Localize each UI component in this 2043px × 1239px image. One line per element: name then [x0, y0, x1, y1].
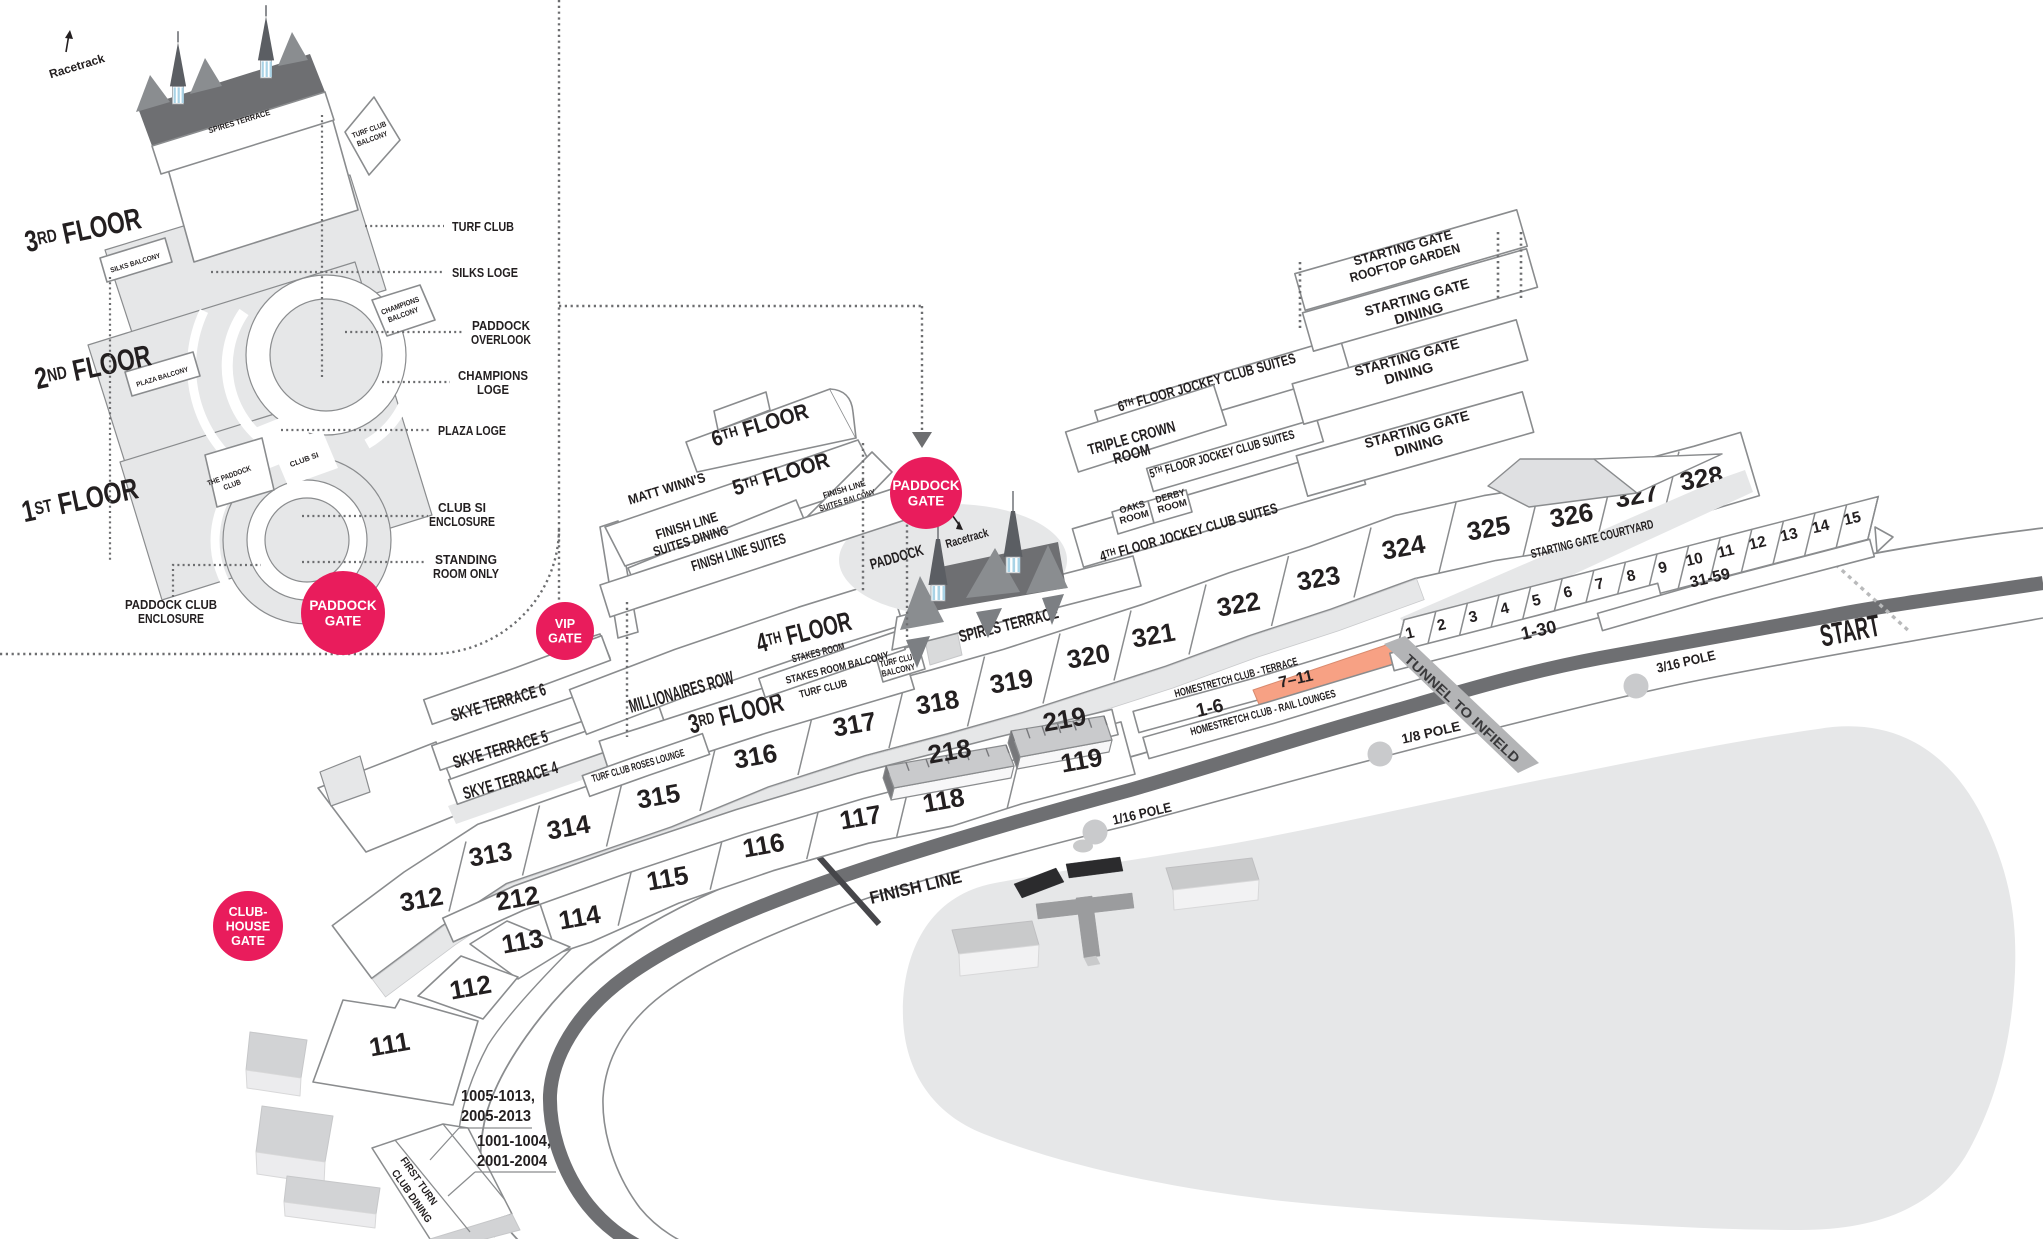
svg-text:GATE: GATE	[908, 494, 945, 509]
svg-text:STANDING: STANDING	[435, 553, 497, 567]
svg-text:1001-1004,: 1001-1004,	[477, 1133, 551, 1150]
svg-text:GATE: GATE	[548, 632, 582, 646]
svg-text:2005-2013: 2005-2013	[461, 1108, 531, 1125]
svg-text:VIP: VIP	[555, 617, 575, 631]
svg-text:PADDOCK CLUB: PADDOCK CLUB	[125, 598, 217, 612]
svg-text:ENCLOSURE: ENCLOSURE	[138, 612, 204, 626]
svg-text:GATE: GATE	[231, 934, 265, 948]
svg-text:PADDOCK: PADDOCK	[892, 478, 960, 493]
svg-text:CHAMPIONS: CHAMPIONS	[458, 369, 528, 383]
svg-text:PADDOCK: PADDOCK	[309, 598, 377, 613]
svg-text:HOUSE: HOUSE	[226, 919, 270, 933]
svg-text:PADDOCK: PADDOCK	[472, 319, 530, 333]
svg-text:GATE: GATE	[325, 614, 362, 629]
svg-text:ENCLOSURE: ENCLOSURE	[429, 515, 495, 529]
svg-text:CLUB SI: CLUB SI	[438, 501, 486, 515]
svg-text:PLAZA LOGE: PLAZA LOGE	[438, 424, 506, 438]
svg-text:LOGE: LOGE	[477, 383, 509, 397]
svg-text:1005-1013,: 1005-1013,	[461, 1088, 535, 1105]
svg-text:ROOM ONLY: ROOM ONLY	[433, 567, 500, 581]
svg-text:2001-2004: 2001-2004	[477, 1153, 547, 1170]
svg-text:TURF CLUB: TURF CLUB	[452, 220, 514, 234]
svg-text:OVERLOOK: OVERLOOK	[471, 333, 531, 347]
svg-text:CLUB-: CLUB-	[229, 905, 268, 919]
svg-text:SILKS LOGE: SILKS LOGE	[452, 266, 518, 280]
